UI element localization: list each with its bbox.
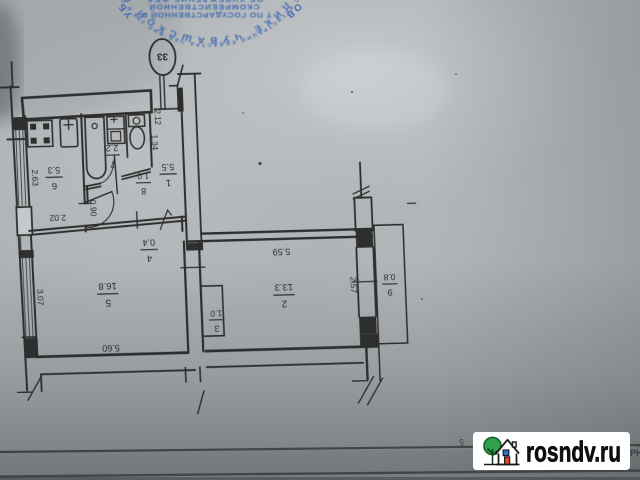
svg-text:5.5: 5.5 [161,162,174,172]
svg-text:13.3: 13.3 [274,281,293,293]
svg-text:5.59: 5.59 [272,247,290,257]
svg-text:0.90: 0.90 [88,200,99,217]
svg-text:1.0: 1.0 [137,171,149,181]
svg-text:Т ПО ГОСУДАРСТВЕННОЙ Р: Т ПО ГОСУДАРСТВЕННОЙ Р [142,11,272,20]
svg-text:33: 33 [156,50,168,61]
svg-text:9: 9 [387,287,392,297]
svg-text:2.63: 2.63 [30,169,41,186]
svg-text:5.3: 5.3 [47,165,60,175]
svg-text:5: 5 [105,297,111,308]
svg-text:ОЕ УЧРЕЖДЕНИЕ ФЕД: ОЕ УЧРЕЖДЕНИЕ ФЕД [147,0,263,4]
svg-text:СКОМРЕЕИСТВЕННОЙ: СКОМРЕЕИСТВЕННОЙ [149,3,259,12]
svg-text:3: 3 [214,323,219,333]
svg-text:5.60: 5.60 [102,343,120,353]
svg-text:2.02: 2.02 [49,213,66,223]
svg-text:2: 2 [281,298,287,309]
svg-text:0.8: 0.8 [383,272,395,282]
svg-text:rosndv.ru: rosndv.ru [526,437,621,469]
svg-text:7: 7 [110,158,116,169]
svg-text:1.34: 1.34 [150,134,160,150]
svg-text:2.2: 2.2 [106,143,119,153]
svg-text:1.0: 1.0 [210,308,222,318]
svg-text:4: 4 [147,253,153,264]
svg-text:6: 6 [52,180,58,191]
svg-text:2.57: 2.57 [348,277,359,294]
svg-text:16.8: 16.8 [98,280,117,292]
svg-text:0.4: 0.4 [142,237,155,247]
svg-text:3.07: 3.07 [35,289,46,306]
svg-text:8: 8 [141,186,146,196]
svg-text:1: 1 [166,177,172,188]
svg-text:2.12: 2.12 [153,109,163,125]
svg-text:5: 5 [459,437,464,447]
